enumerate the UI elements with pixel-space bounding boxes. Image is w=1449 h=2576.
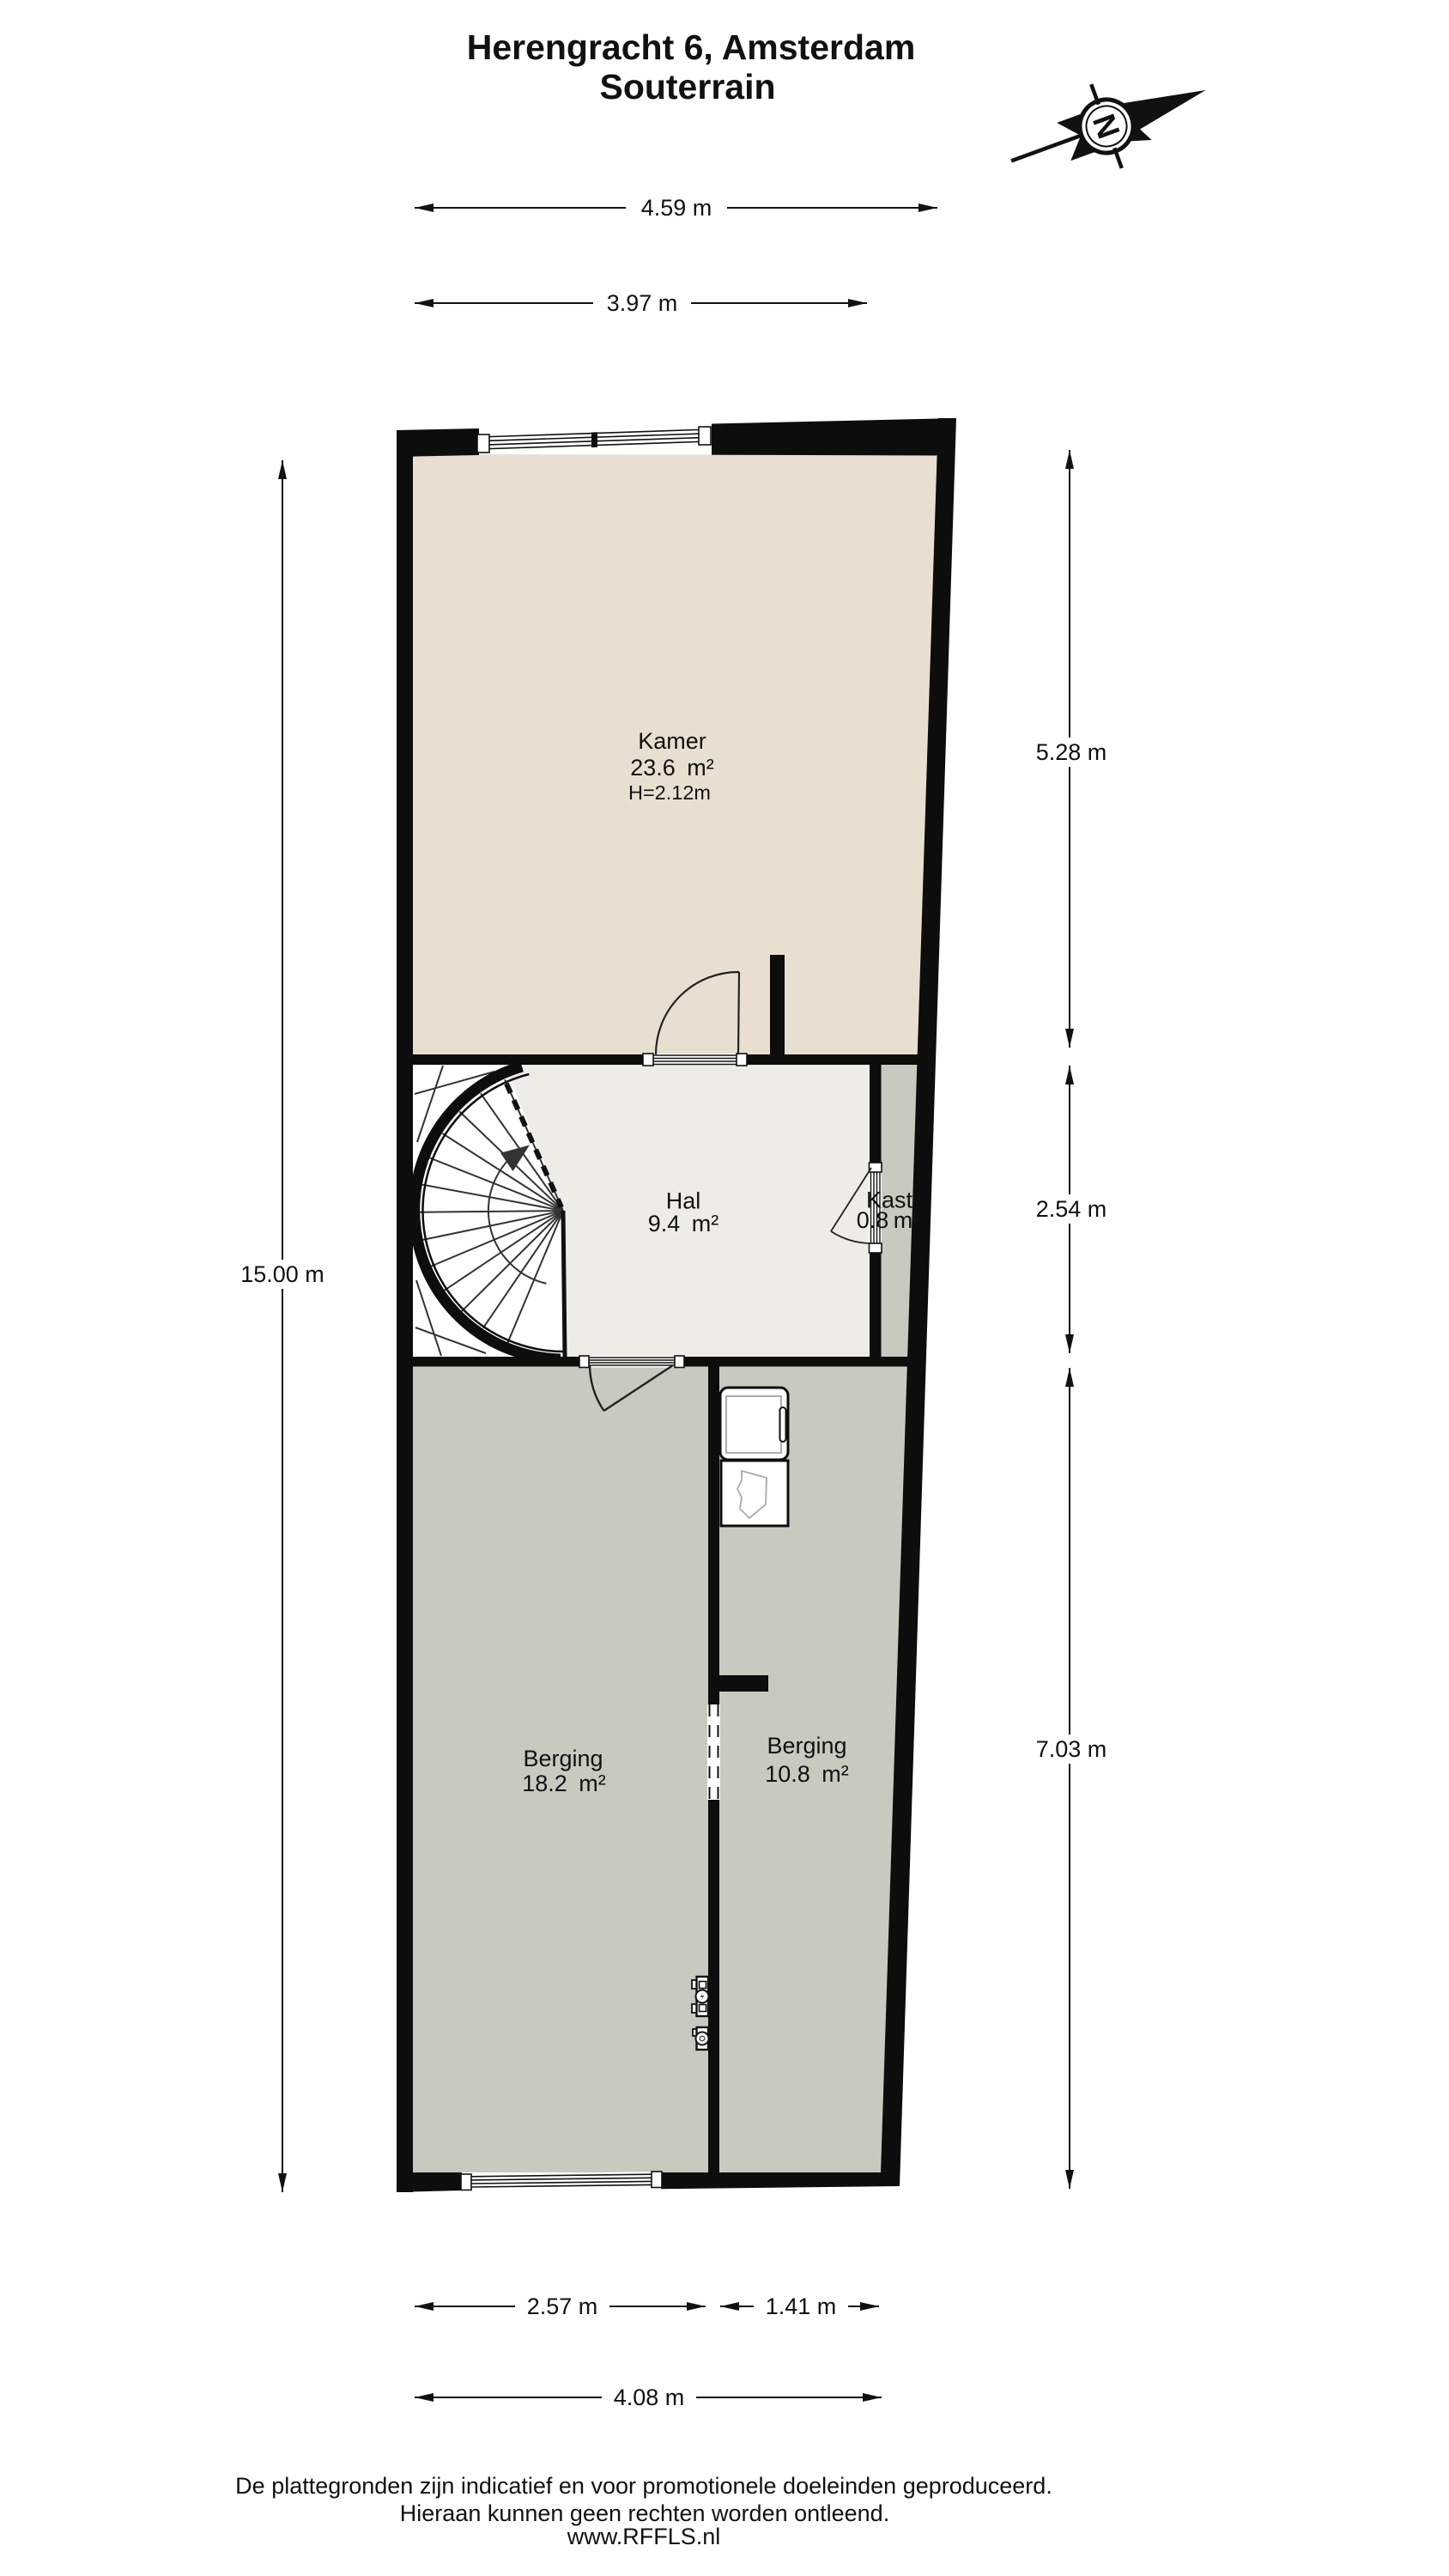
- svg-text:Berging: Berging: [767, 1733, 846, 1759]
- svg-text:Kamer: Kamer: [638, 728, 706, 754]
- svg-text:www.RFFLS.nl: www.RFFLS.nl: [567, 2524, 721, 2549]
- svg-text:Souterrain: Souterrain: [599, 67, 775, 106]
- svg-text:10.8 m²: 10.8 m²: [765, 1761, 849, 1787]
- svg-text:2.54 m: 2.54 m: [1036, 1196, 1107, 1222]
- svg-text:4.08 m: 4.08 m: [614, 2385, 685, 2410]
- svg-text:7.03 m: 7.03 m: [1036, 1736, 1107, 1762]
- svg-text:1.41 m: 1.41 m: [766, 2293, 837, 2319]
- svg-text:H=2.12m: H=2.12m: [628, 781, 711, 804]
- svg-text:Hal: Hal: [666, 1188, 701, 1214]
- svg-text:0.8 m²: 0.8 m²: [857, 1207, 920, 1233]
- svg-text:15.00 m: 15.00 m: [240, 1261, 324, 1287]
- svg-text:18.2 m²: 18.2 m²: [522, 1771, 606, 1796]
- svg-text:5.28 m: 5.28 m: [1036, 739, 1107, 765]
- svg-text:Hieraan kunnen geen rechten wo: Hieraan kunnen geen rechten worden ontle…: [400, 2500, 889, 2526]
- svg-text:2.57 m: 2.57 m: [527, 2293, 598, 2319]
- svg-text:9.4 m²: 9.4 m²: [648, 1211, 719, 1236]
- svg-text:Herengracht 6, Amsterdam: Herengracht 6, Amsterdam: [467, 27, 916, 67]
- svg-text:Berging: Berging: [523, 1746, 603, 1771]
- svg-text:4.59 m: 4.59 m: [641, 195, 712, 221]
- svg-text:De plattegronden zijn indicati: De plattegronden zijn indicatief en voor…: [235, 2473, 1052, 2499]
- svg-text:23.6 m²: 23.6 m²: [630, 755, 714, 781]
- svg-text:3.97 m: 3.97 m: [607, 290, 678, 316]
